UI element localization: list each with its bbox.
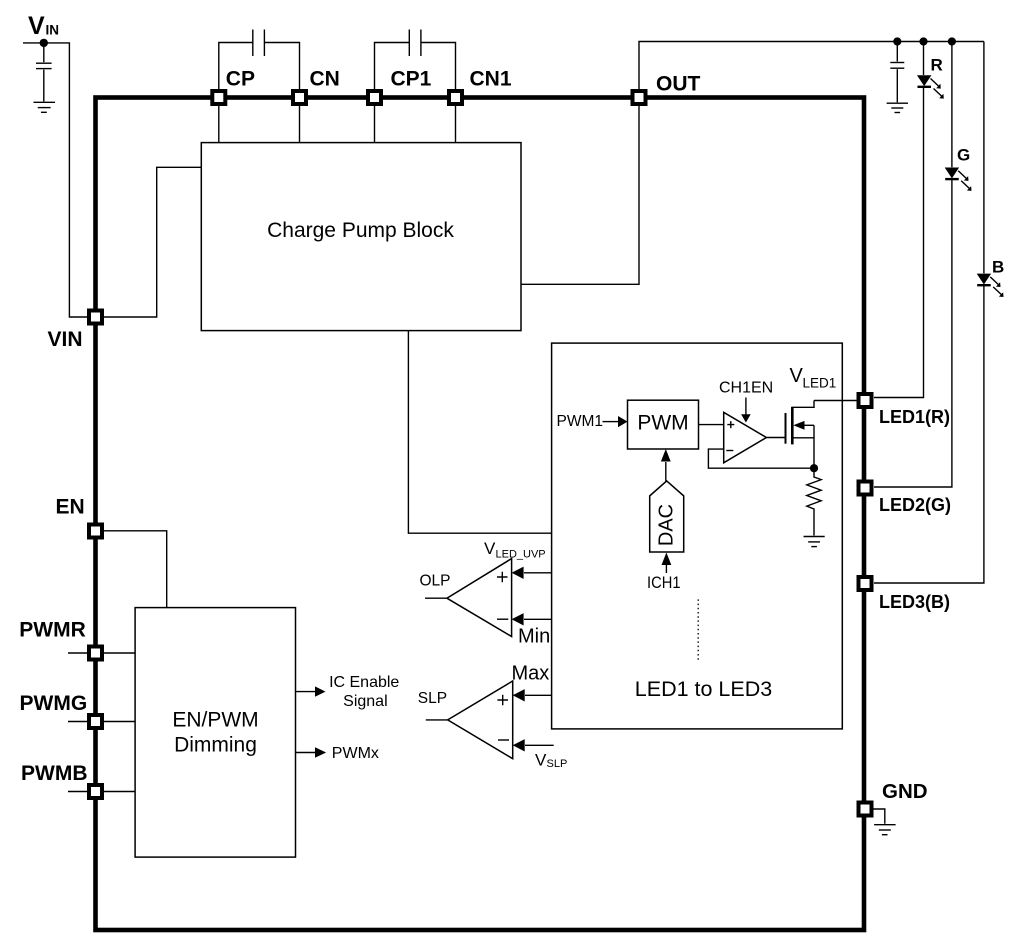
- svg-text:EN: EN: [56, 496, 85, 519]
- svg-text:OUT: OUT: [656, 73, 701, 96]
- svg-text:PWM1: PWM1: [557, 413, 604, 430]
- svg-text:DAC: DAC: [656, 504, 678, 546]
- svg-text:PWM: PWM: [637, 412, 688, 435]
- svg-text:IN: IN: [46, 23, 60, 38]
- svg-text:PWMB: PWMB: [21, 762, 88, 785]
- svg-text:LED2(G): LED2(G): [879, 495, 951, 515]
- svg-text:LED1(R): LED1(R): [879, 407, 950, 427]
- svg-text:V: V: [535, 751, 547, 770]
- svg-text:Dimming: Dimming: [174, 734, 257, 757]
- svg-text:PWMR: PWMR: [19, 619, 86, 642]
- svg-text:CP1: CP1: [391, 68, 432, 91]
- svg-text:ICH1: ICH1: [647, 573, 681, 592]
- svg-text:R: R: [931, 56, 943, 75]
- svg-text:V: V: [28, 12, 45, 40]
- svg-text:V: V: [790, 365, 804, 387]
- svg-text:CN1: CN1: [470, 68, 512, 91]
- svg-text:Charge Pump Block: Charge Pump Block: [267, 219, 454, 242]
- svg-text:Signal: Signal: [343, 693, 387, 710]
- svg-text:Min: Min: [518, 626, 550, 648]
- svg-text:G: G: [957, 146, 970, 165]
- svg-text:PWMG: PWMG: [20, 692, 88, 715]
- svg-text:Max: Max: [512, 663, 550, 685]
- svg-text:OLP: OLP: [420, 573, 451, 590]
- svg-text:SLP: SLP: [418, 690, 447, 707]
- svg-text:GND: GND: [882, 780, 928, 803]
- svg-text:CN: CN: [310, 68, 340, 91]
- svg-text:SLP: SLP: [547, 758, 568, 770]
- svg-text:EN/PWM: EN/PWM: [172, 709, 258, 732]
- svg-text:LED1: LED1: [803, 376, 837, 391]
- svg-text:V: V: [484, 539, 496, 558]
- svg-text:IC Enable: IC Enable: [329, 674, 399, 691]
- svg-text:CH1EN: CH1EN: [719, 380, 773, 397]
- svg-text:LED_UVP: LED_UVP: [496, 549, 546, 561]
- svg-text:LED3(B): LED3(B): [879, 592, 950, 612]
- svg-text:CP: CP: [226, 68, 255, 91]
- svg-text:LED1 to LED3: LED1 to LED3: [635, 677, 772, 701]
- svg-text:B: B: [992, 258, 1004, 277]
- svg-text:PWMx: PWMx: [332, 745, 379, 762]
- svg-text:VIN: VIN: [48, 328, 83, 351]
